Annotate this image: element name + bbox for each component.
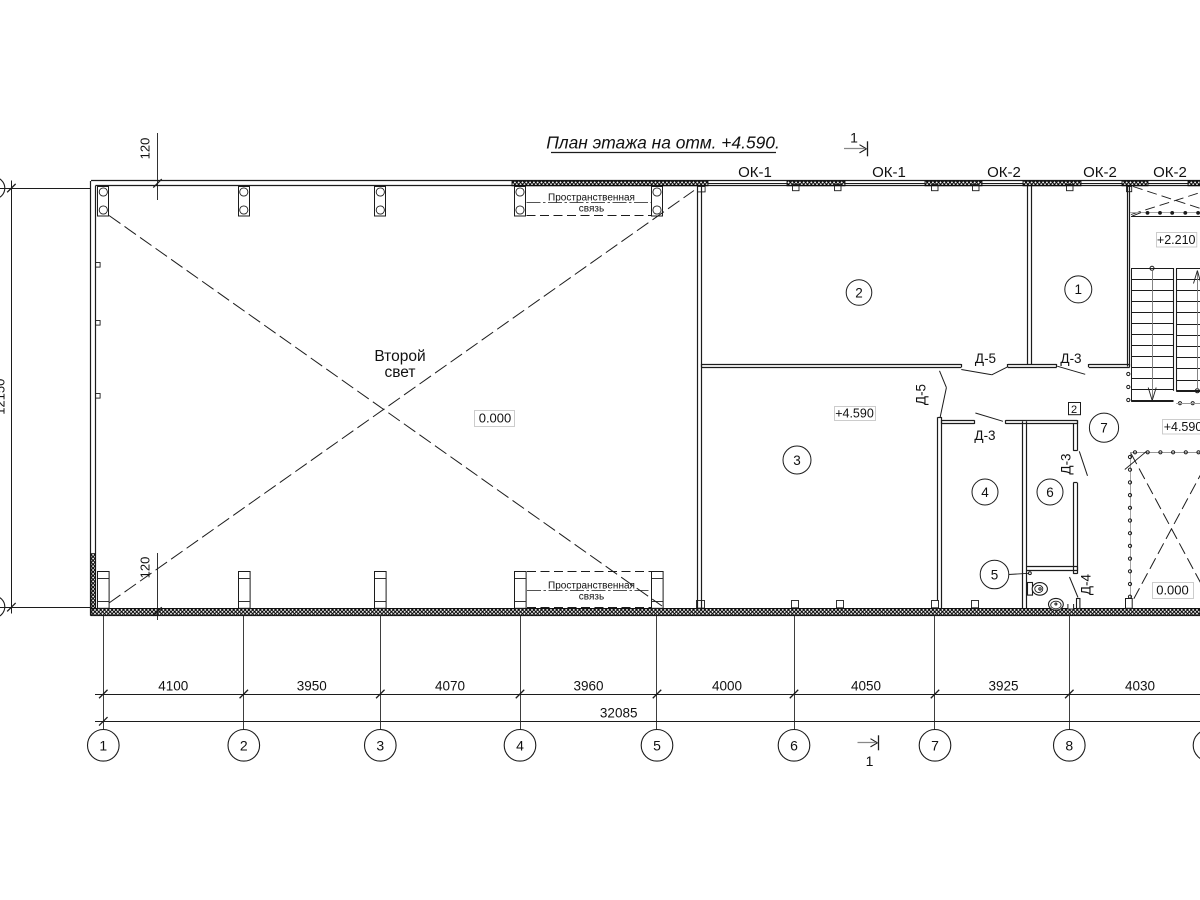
svg-text:связь: связь xyxy=(579,592,604,603)
svg-text:7: 7 xyxy=(1100,421,1108,436)
svg-text:2: 2 xyxy=(240,737,248,753)
svg-text:4070: 4070 xyxy=(435,679,465,694)
svg-text:5: 5 xyxy=(991,567,999,582)
svg-text:2: 2 xyxy=(855,285,863,300)
svg-text:1: 1 xyxy=(866,753,874,769)
svg-text:5: 5 xyxy=(653,737,661,753)
svg-text:ОК-2: ОК-2 xyxy=(1083,164,1117,181)
svg-text:+2.210: +2.210 xyxy=(1157,233,1196,247)
svg-text:+4.590: +4.590 xyxy=(1164,420,1200,434)
svg-text:4030: 4030 xyxy=(1125,679,1155,694)
svg-text:Д-4: Д-4 xyxy=(1078,573,1093,595)
svg-text:120: 120 xyxy=(138,138,153,160)
svg-text:32085: 32085 xyxy=(600,706,638,721)
svg-text:3960: 3960 xyxy=(573,679,603,694)
svg-text:4100: 4100 xyxy=(158,679,188,694)
svg-text:Д-5: Д-5 xyxy=(914,384,929,405)
svg-text:Второй: Второй xyxy=(374,348,425,365)
svg-text:1: 1 xyxy=(1075,282,1083,297)
svg-text:4: 4 xyxy=(981,485,989,500)
svg-text:12150: 12150 xyxy=(0,379,8,415)
svg-text:Пространственная: Пространственная xyxy=(548,581,635,592)
svg-text:Д-5: Д-5 xyxy=(975,351,996,366)
svg-text:3950: 3950 xyxy=(297,679,327,694)
svg-text:8: 8 xyxy=(1065,737,1073,753)
svg-text:ОК-1: ОК-1 xyxy=(738,164,772,181)
svg-text:7: 7 xyxy=(931,737,939,753)
svg-text:Д-3: Д-3 xyxy=(1059,453,1074,474)
svg-text:свет: свет xyxy=(384,364,415,381)
svg-text:3: 3 xyxy=(376,737,384,753)
svg-text:120: 120 xyxy=(138,557,153,579)
svg-text:+4.590: +4.590 xyxy=(835,406,874,420)
svg-text:2: 2 xyxy=(1071,404,1077,416)
svg-text:1: 1 xyxy=(99,737,107,753)
svg-text:4: 4 xyxy=(516,737,524,753)
svg-text:0.000: 0.000 xyxy=(479,411,512,426)
svg-text:4050: 4050 xyxy=(851,679,881,694)
svg-text:Пространственная: Пространственная xyxy=(548,192,635,203)
svg-text:3: 3 xyxy=(793,453,801,468)
svg-text:План этажа на отм. +4.590.: План этажа на отм. +4.590. xyxy=(546,133,780,153)
svg-text:3925: 3925 xyxy=(988,679,1018,694)
svg-text:Д-3: Д-3 xyxy=(974,428,995,443)
svg-text:1: 1 xyxy=(850,130,858,146)
svg-text:4000: 4000 xyxy=(712,679,742,694)
svg-text:6: 6 xyxy=(790,737,798,753)
svg-text:ОК-2: ОК-2 xyxy=(1153,164,1187,181)
svg-text:6: 6 xyxy=(1046,485,1054,500)
svg-text:ОК-1: ОК-1 xyxy=(872,164,906,181)
svg-text:связь: связь xyxy=(579,203,604,214)
svg-text:0.000: 0.000 xyxy=(1156,583,1189,598)
svg-text:ОК-2: ОК-2 xyxy=(987,164,1021,181)
svg-text:Д-3: Д-3 xyxy=(1060,351,1081,366)
